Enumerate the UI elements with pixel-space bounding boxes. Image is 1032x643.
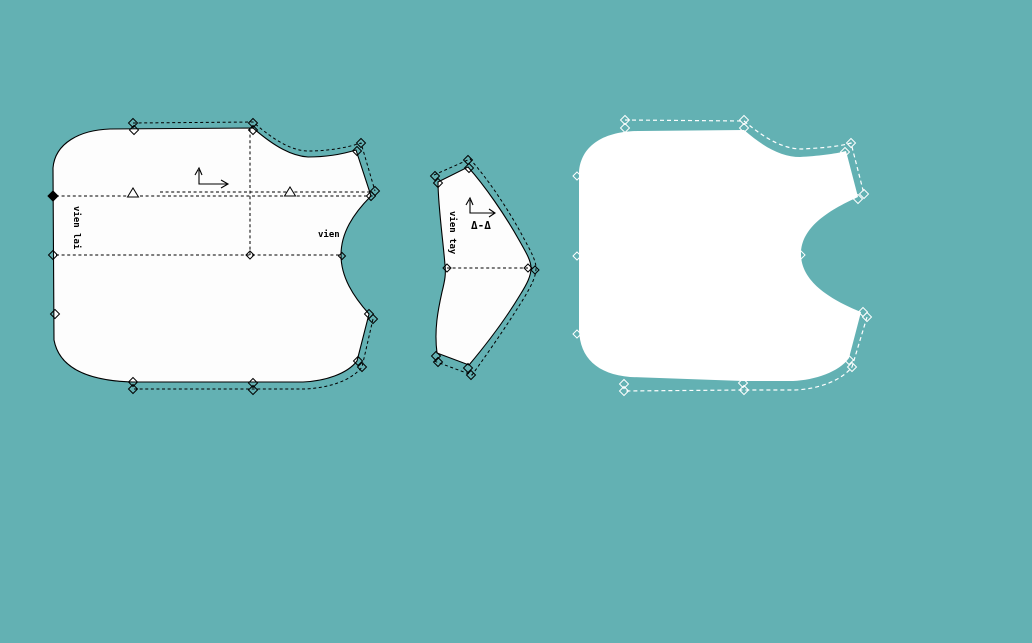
left-pattern-piece: vien lai vien [48,119,380,395]
right-pattern-piece [573,116,872,396]
left-piece-label-vien: vien [318,229,340,240]
left-piece-notch-diamond[interactable] [358,363,367,372]
middle-piece-notch-diamond[interactable] [531,266,539,274]
middle-piece-outline[interactable] [436,167,531,365]
pattern-design-canvas[interactable]: vien lai vien vien tay Δ-Δ [0,0,1032,643]
right-piece-silhouette[interactable] [579,130,861,381]
left-piece-outline[interactable] [53,128,371,382]
middle-pattern-piece: vien tay Δ-Δ [431,156,540,380]
middle-piece-label-vien-tay: vien tay [447,211,458,255]
left-piece-label-vien-lai: vien lai [71,206,82,250]
middle-piece-delta-notch-symbol: Δ-Δ [471,219,491,232]
pattern-svg: vien lai vien vien tay Δ-Δ [0,0,1032,643]
